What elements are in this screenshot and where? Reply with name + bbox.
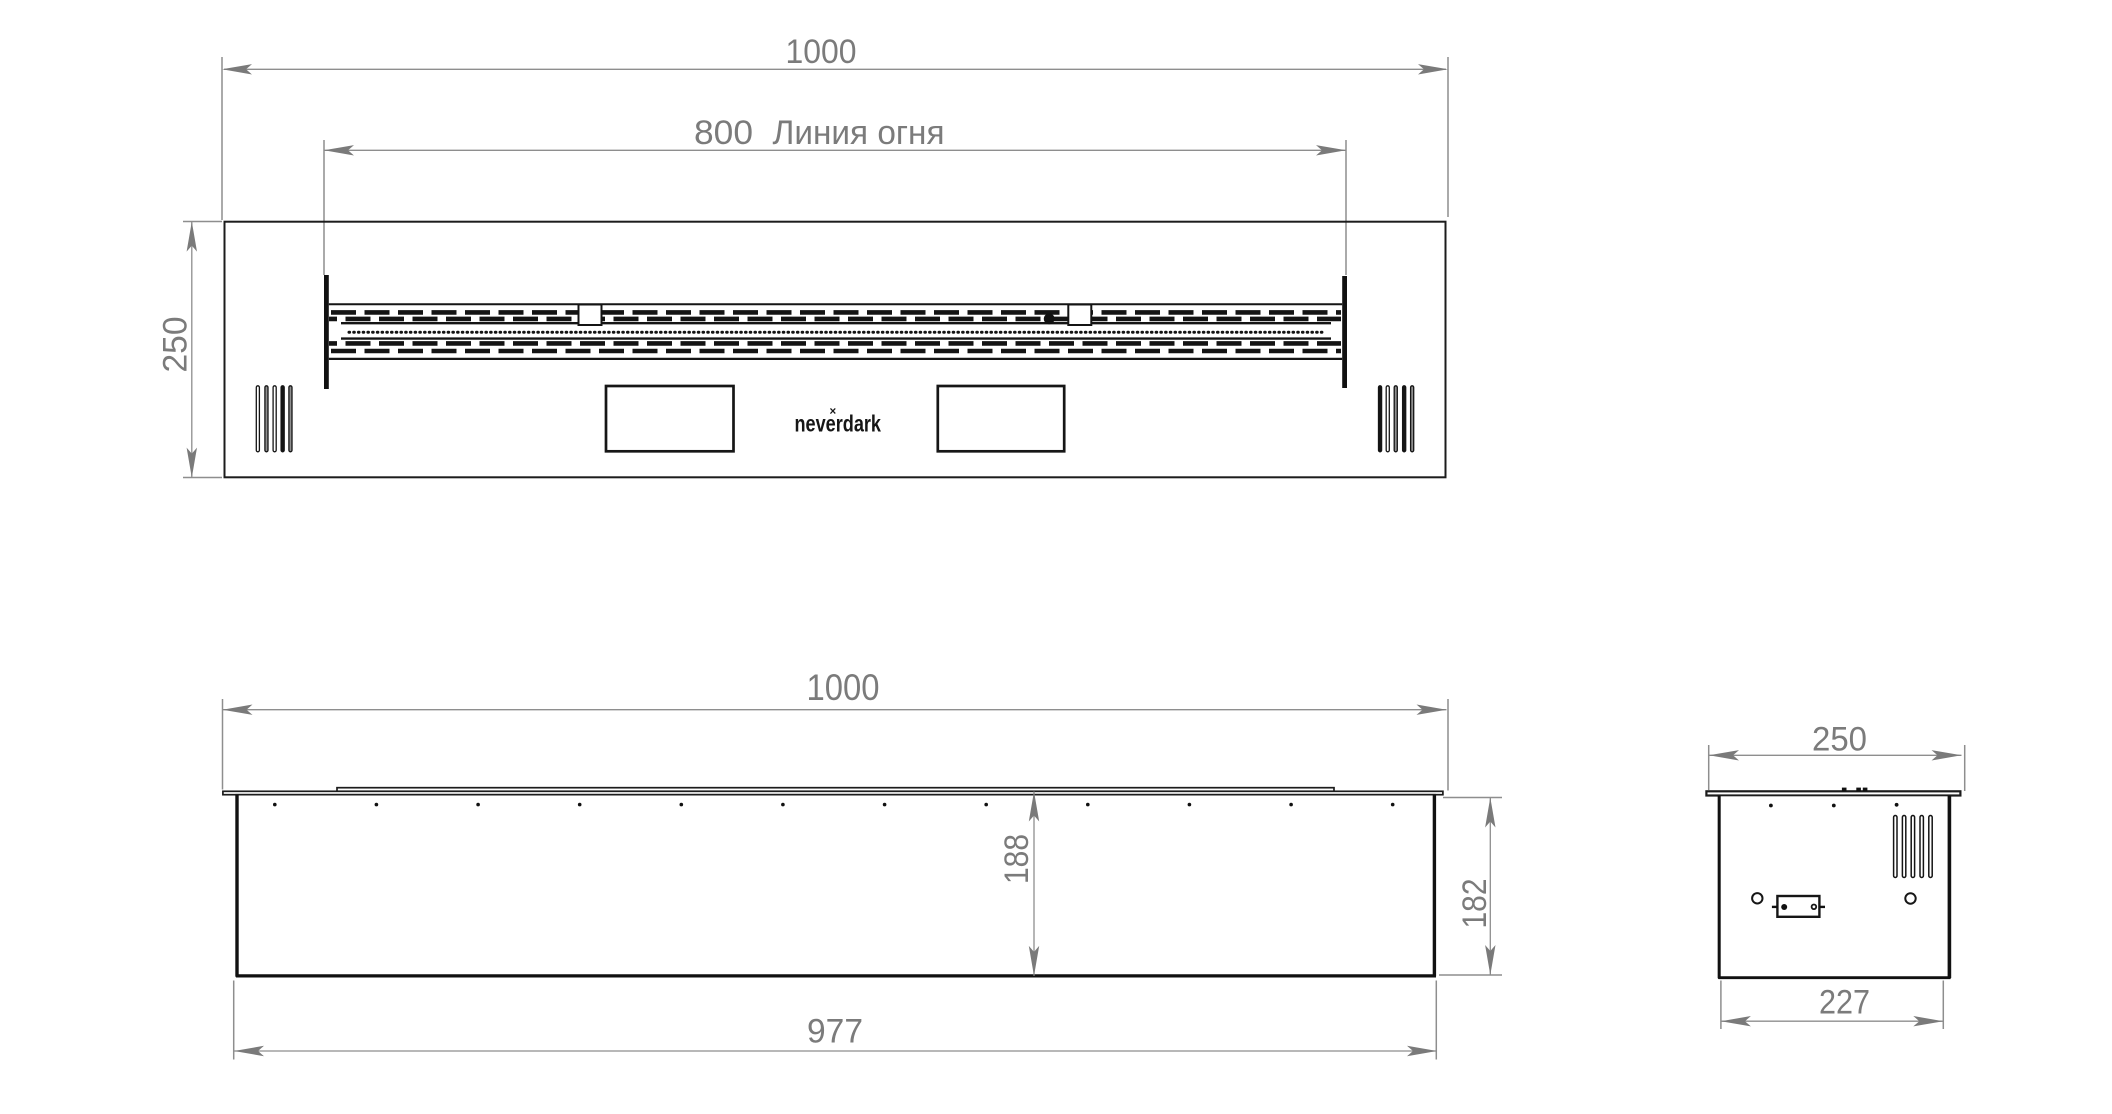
svg-text:×: ×: [830, 406, 837, 418]
svg-text:Линия огня: Линия огня: [773, 114, 945, 152]
svg-text:250: 250: [1812, 721, 1867, 759]
svg-text:neverdark: neverdark: [795, 411, 882, 437]
svg-text:800: 800: [694, 114, 753, 152]
svg-text:188: 188: [998, 834, 1036, 884]
svg-text:182: 182: [1456, 879, 1494, 929]
svg-text:250: 250: [157, 317, 195, 373]
svg-text:977: 977: [807, 1013, 863, 1051]
svg-text:1000: 1000: [786, 33, 857, 71]
svg-text:1000: 1000: [807, 666, 880, 708]
svg-text:227: 227: [1819, 984, 1870, 1022]
